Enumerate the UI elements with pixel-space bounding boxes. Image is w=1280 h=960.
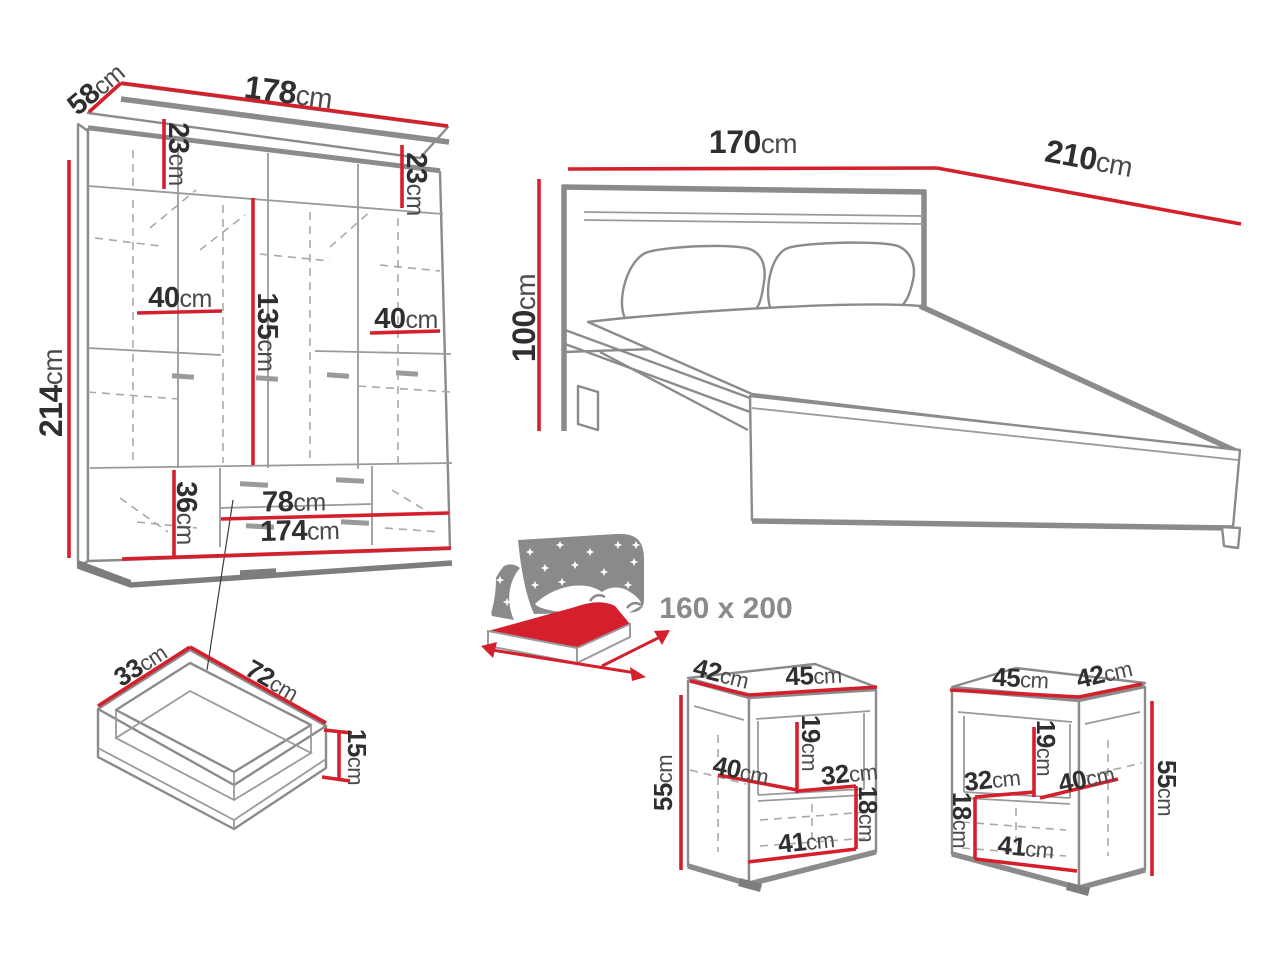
bed-drawing: [562, 185, 1240, 548]
wardrobe-left-section-label: 40cm: [148, 282, 212, 314]
nightstand-right-width-label: 45cm: [992, 662, 1050, 695]
wardrobe-height-label: 214cm: [33, 349, 69, 437]
bed-right-foot: [1222, 527, 1240, 548]
nightstand-left-drawer-height-label: 18cm: [853, 786, 883, 842]
nightstand-right-drawer-height-label: 18cm: [947, 792, 977, 848]
nightstand-left-width-label: 45cm: [785, 659, 843, 692]
bed-height-label: 100cm: [506, 274, 542, 362]
bed-width-line: [568, 168, 937, 169]
wardrobe-internal-width-label: 174cm: [260, 514, 340, 548]
wardrobe-drawer-width-label: 78cm: [262, 485, 326, 518]
bed-width-label: 170cm: [709, 124, 797, 160]
bed-length-label: 210cm: [1042, 132, 1135, 183]
nightstand-right-niche-height-label: 19cm: [1031, 720, 1061, 776]
nightstand-right-height-label: 55cm: [1152, 760, 1182, 816]
nightstand-left-height-label: 55cm: [648, 755, 678, 811]
wardrobe-right-section-label: 40cm: [374, 303, 438, 335]
wardrobe-hanging-space-label: 135cm: [251, 292, 283, 371]
wardrobe-top-shelf-right-label: 23cm: [400, 152, 432, 216]
wardrobe-top-shelf-left-label: 23cm: [162, 122, 194, 186]
wardrobe-bottom-section-label: 36cm: [170, 481, 202, 545]
mattress-size-label: 160 x 200: [659, 592, 792, 625]
furniture-dimensions-diagram: 58cm 178cm 214cm 23cm 23cm 40cm 40cm 135…: [0, 0, 1280, 960]
wardrobe-left-side: [78, 124, 88, 567]
bed-left-leg: [578, 386, 598, 430]
diagram-canvas: 58cm 178cm 214cm 23cm 23cm 40cm 40cm 135…: [0, 0, 1280, 960]
drawer-height-label: 15cm: [342, 729, 372, 785]
mattress-icon: [446, 528, 670, 681]
